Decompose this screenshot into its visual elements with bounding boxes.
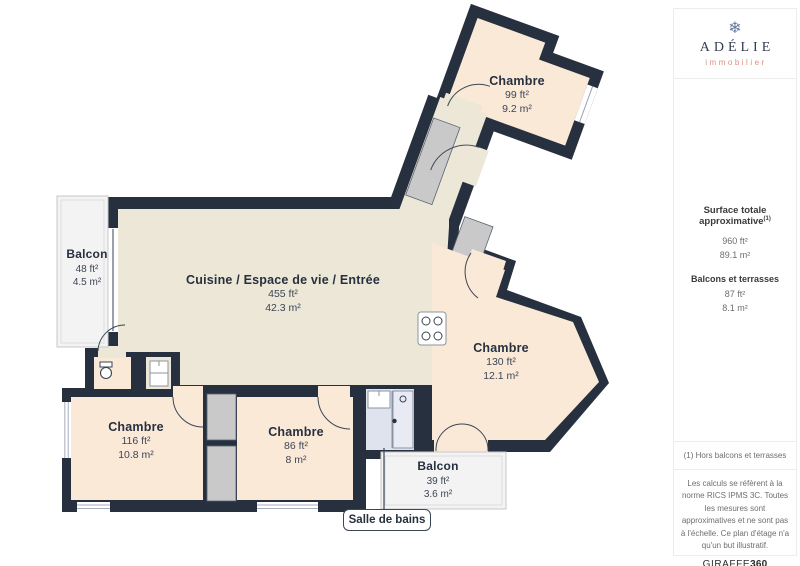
- footnote: (1) Hors balcons et terrasses: [674, 441, 796, 470]
- room-bedroom-left: [71, 397, 203, 500]
- agency-name: ADÉLIE: [700, 40, 775, 56]
- toilet-icon: [100, 362, 112, 379]
- balconies-ft: 87 ft²: [725, 287, 746, 301]
- agency-logo: ❄ ADÉLIE immobilier: [674, 9, 796, 79]
- floorplan-page: Chambre 99 ft² 9.2 m² Cuisine / Espace d…: [0, 0, 800, 566]
- total-surface-ft: 960 ft²: [722, 234, 748, 248]
- legal-section: Les calculs se réfèrent à la norme RICS …: [674, 470, 796, 555]
- floorplan-svg: [0, 0, 645, 566]
- bathroom-callout: Salle de bains: [343, 509, 431, 531]
- total-surface-title: Surface totale approximative(1): [674, 205, 796, 227]
- giraffe360-credit: GIRAFFE360: [674, 559, 796, 566]
- balcony-bottom: [381, 452, 506, 509]
- agency-subtitle: immobilier: [705, 58, 766, 67]
- stove-icon: [418, 312, 446, 345]
- info-panel: ❄ ADÉLIE immobilier Surface totale appro…: [673, 8, 797, 556]
- snowflake-icon: ❄: [728, 21, 741, 37]
- total-surface-m: 89.1 m²: [720, 248, 751, 262]
- room-bedroom-middle: [237, 397, 353, 500]
- cabinet-icon: [150, 361, 168, 386]
- balconies-title: Balcons et terrasses: [691, 274, 779, 284]
- balcony-left: [57, 196, 108, 347]
- closet-between-bedrooms-1: [207, 394, 236, 440]
- disclaimer-text: Les calculs se réfèrent à la norme RICS …: [674, 478, 796, 552]
- closet-between-bedrooms-2: [207, 446, 236, 501]
- balconies-m: 8.1 m²: [722, 301, 748, 315]
- surface-metrics: Surface totale approximative(1) 960 ft² …: [674, 79, 796, 441]
